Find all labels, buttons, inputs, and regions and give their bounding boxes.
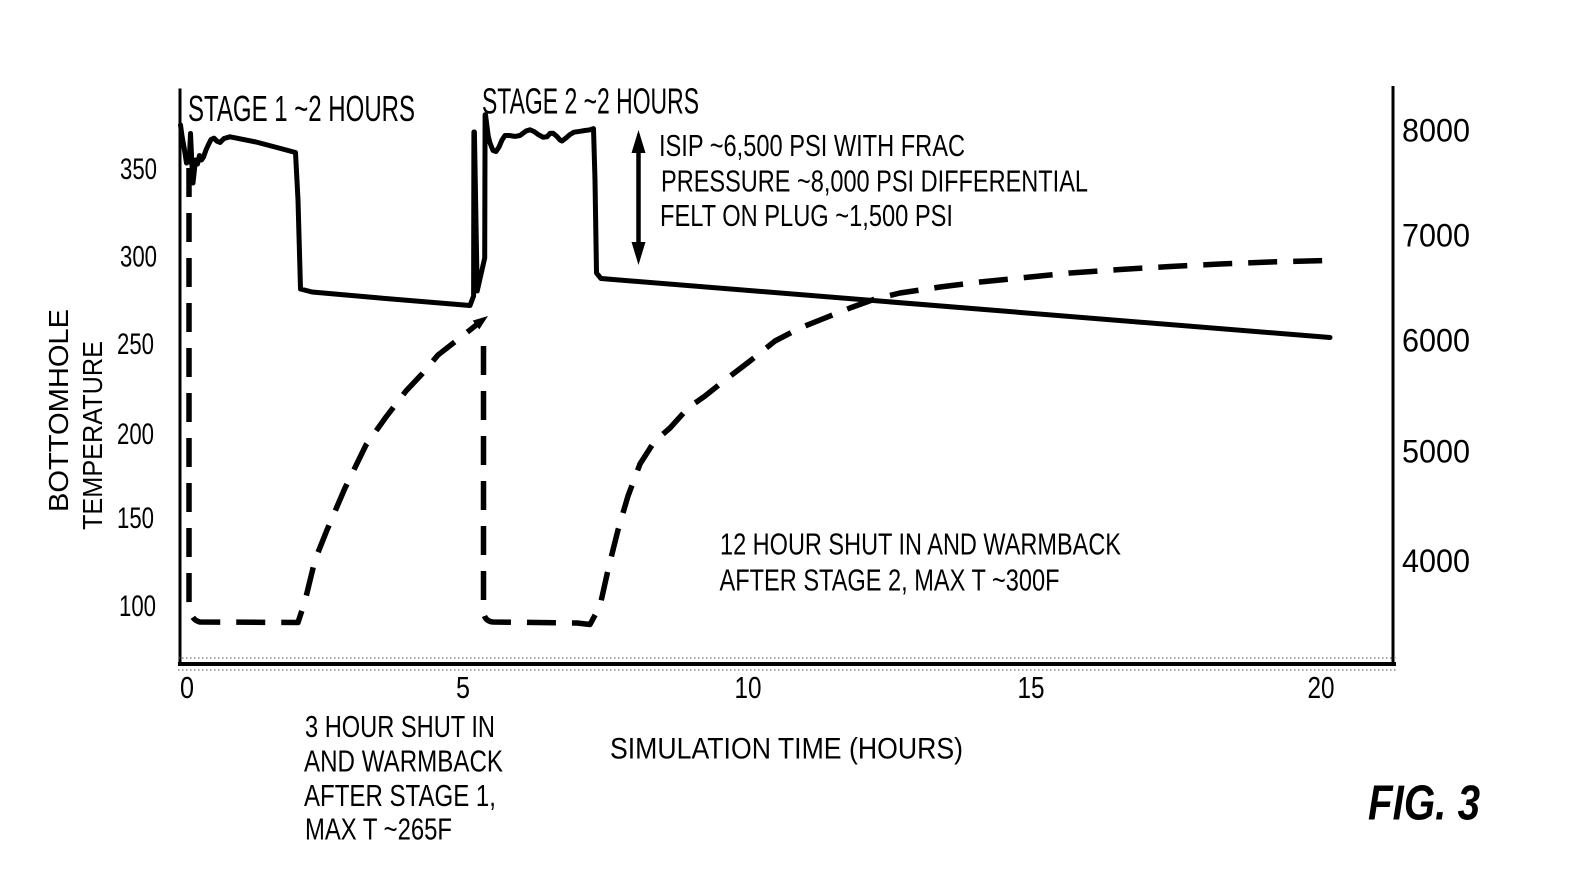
- svg-text:5000: 5000: [1402, 434, 1470, 470]
- svg-text:3 HOUR SHUT IN: 3 HOUR SHUT IN: [305, 709, 495, 744]
- svg-text:100: 100: [119, 590, 156, 623]
- svg-text:0: 0: [180, 670, 194, 705]
- svg-text:10: 10: [735, 670, 762, 705]
- svg-text:MAX T ~265F: MAX T ~265F: [305, 812, 452, 847]
- svg-text:AND WARMBACK: AND WARMBACK: [304, 744, 503, 779]
- svg-text:12 HOUR SHUT IN AND WARMBACK: 12 HOUR SHUT IN AND WARMBACK: [720, 527, 1121, 562]
- svg-text:ISIP ~6,500 PSI WITH FRAC: ISIP ~6,500 PSI WITH FRAC: [659, 128, 965, 163]
- svg-text:AFTER STAGE 1,: AFTER STAGE 1,: [304, 778, 496, 813]
- svg-text:AFTER STAGE 2, MAX T ~300F: AFTER STAGE 2, MAX T ~300F: [720, 563, 1060, 598]
- svg-text:STAGE 1 ~2 HOURS: STAGE 1 ~2 HOURS: [188, 88, 415, 129]
- svg-text:15: 15: [1018, 670, 1045, 705]
- svg-text:250: 250: [117, 328, 154, 361]
- svg-text:5: 5: [456, 670, 470, 705]
- svg-text:BOTTOMHOLE: BOTTOMHOLE: [43, 309, 74, 512]
- svg-text:FIG. 3: FIG. 3: [1368, 777, 1480, 831]
- svg-text:200: 200: [117, 418, 154, 451]
- svg-text:SIMULATION TIME (HOURS): SIMULATION TIME (HOURS): [610, 733, 963, 766]
- svg-text:4000: 4000: [1402, 543, 1470, 579]
- svg-text:20: 20: [1308, 670, 1335, 705]
- svg-text:PRESSURE ~8,000 PSI DIFFERENTI: PRESSURE ~8,000 PSI DIFFERENTIAL: [661, 164, 1088, 199]
- svg-text:350: 350: [120, 153, 157, 186]
- svg-text:8000: 8000: [1402, 113, 1470, 149]
- svg-text:STAGE 2 ~2 HOURS: STAGE 2 ~2 HOURS: [482, 81, 699, 122]
- svg-text:FELT ON PLUG ~1,500 PSI: FELT ON PLUG ~1,500 PSI: [660, 198, 953, 233]
- svg-text:TEMPERATURE: TEMPERATURE: [77, 341, 108, 530]
- svg-text:300: 300: [120, 241, 157, 274]
- svg-text:150: 150: [117, 502, 154, 535]
- svg-text:6000: 6000: [1402, 323, 1470, 359]
- svg-text:7000: 7000: [1402, 218, 1470, 254]
